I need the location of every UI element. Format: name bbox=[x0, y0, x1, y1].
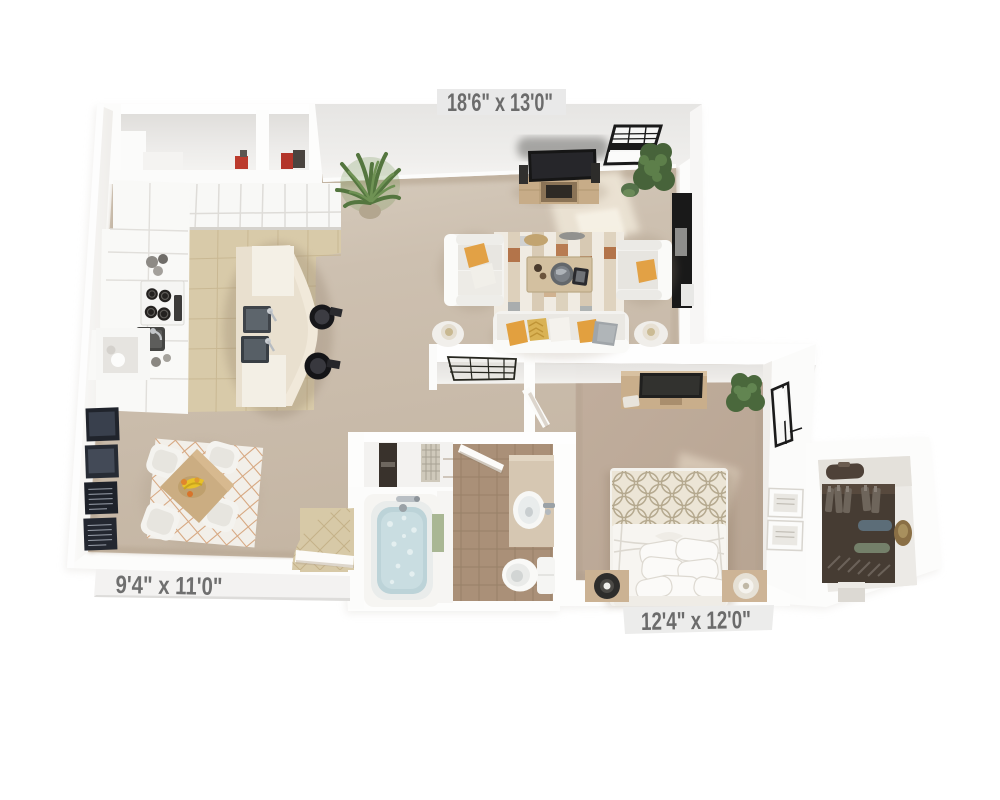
svg-text:12'4" x 12'0": 12'4" x 12'0" bbox=[641, 606, 751, 636]
svg-text:18'6" x 13'0": 18'6" x 13'0" bbox=[447, 89, 553, 117]
svg-text:9'4" x 11'0": 9'4" x 11'0" bbox=[115, 571, 223, 601]
